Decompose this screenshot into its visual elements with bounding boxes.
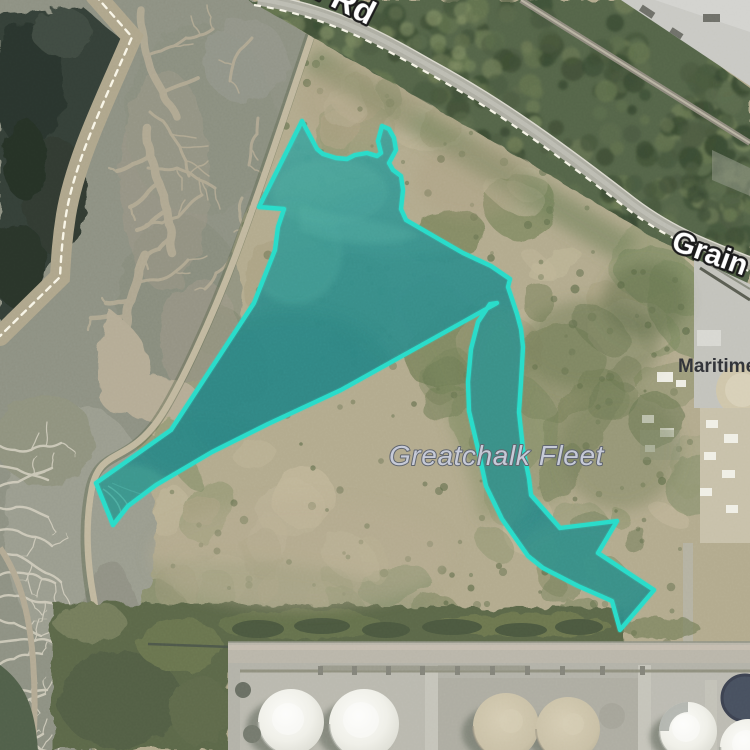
svg-text:Maritime: Maritime (678, 356, 750, 377)
svg-text:Greatchalk Fleet: Greatchalk Fleet (389, 440, 605, 471)
